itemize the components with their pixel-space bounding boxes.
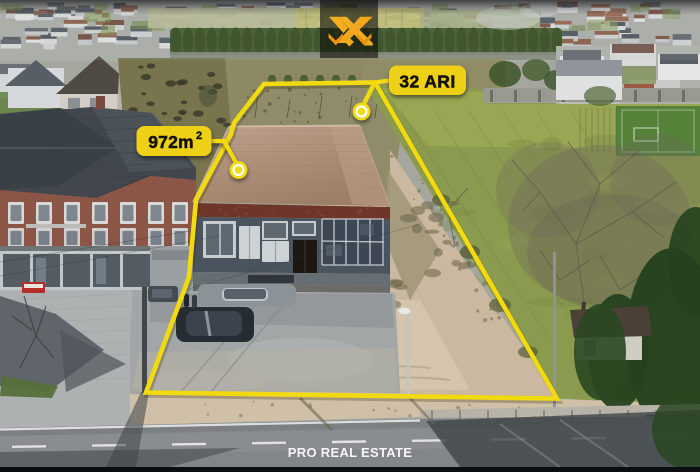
svg-text:32 ARI: 32 ARI [399, 72, 455, 92]
svg-text:PRO REAL ESTATE: PRO REAL ESTATE [288, 445, 412, 460]
svg-text:2: 2 [196, 130, 202, 142]
svg-text:972m: 972m [148, 132, 194, 152]
